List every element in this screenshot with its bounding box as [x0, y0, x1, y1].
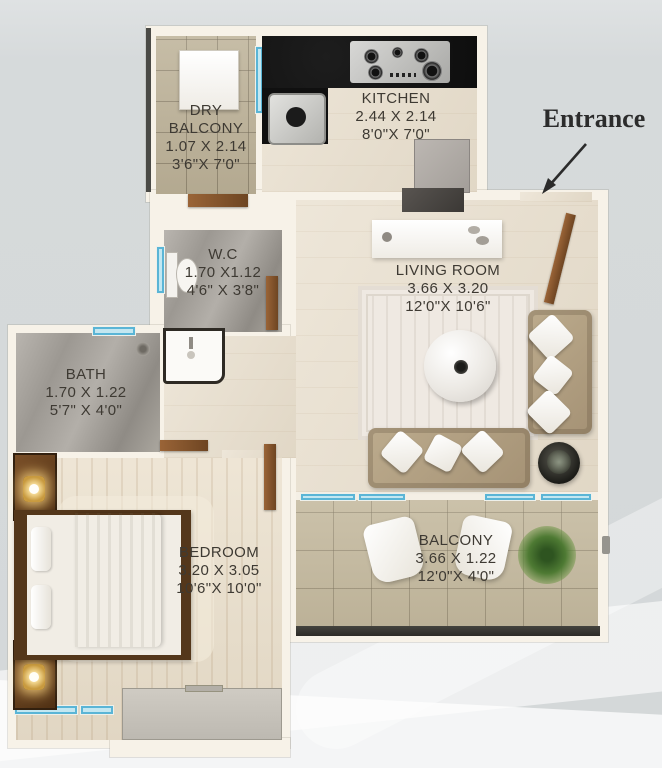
bath-window [92, 326, 136, 336]
room-name: KITCHEN [362, 90, 431, 108]
refrigerator [414, 139, 470, 193]
wall-bottom-step [110, 738, 290, 757]
room-name: DRY [190, 102, 223, 120]
balcony-door-handle [602, 536, 610, 554]
room-label-bedroom: BEDROOM 3.20 X 3.05 10'6"X 10'0" [140, 544, 298, 598]
stove-icon [350, 41, 450, 83]
room-dimensions-ft: 12'0"X 4'0" [418, 568, 495, 586]
room-name: BALCONY [169, 120, 244, 138]
room-label-kitchen: KITCHEN 2.44 X 2.14 8'0"X 7'0" [318, 90, 474, 144]
room-dimensions-m: 1.70 X 1.22 [45, 384, 126, 402]
sliding-door-glass [484, 493, 536, 501]
room-dimensions-ft: 4'6" X 3'8" [187, 282, 260, 300]
room-name: LIVING ROOM [396, 262, 500, 280]
lamp-icon [23, 476, 45, 502]
room-label-wc: W.C 1.70 X1.12 4'6" X 3'8" [164, 246, 282, 300]
coffee-table [424, 330, 496, 402]
sliding-door-glass [358, 493, 406, 501]
room-name: BATH [66, 366, 107, 384]
room-dimensions-m: 1.07 X 2.14 [165, 138, 246, 156]
room-label-dry-balcony: DRY BALCONY 1.07 X 2.14 3'6"X 7'0" [150, 102, 262, 174]
room-label-bath: BATH 1.70 X 1.22 5'7" X 4'0" [16, 366, 156, 420]
room-dimensions-m: 2.44 X 2.14 [355, 108, 436, 126]
washbasin [163, 328, 225, 384]
room-dimensions-m: 3.66 X 3.20 [407, 280, 488, 298]
pillow [31, 527, 51, 571]
room-dimensions-ft: 12'0"X 10'6" [405, 298, 490, 316]
room-name: BEDROOM [179, 544, 259, 562]
room-dimensions-ft: 5'7" X 4'0" [50, 402, 123, 420]
room-dimensions-ft: 8'0"X 7'0" [362, 126, 430, 144]
sliding-door-glass [540, 493, 592, 501]
sofa-right [528, 310, 592, 434]
bedroom-door [264, 444, 276, 510]
room-name: W.C [208, 246, 238, 264]
room-dimensions-m: 3.66 X 1.22 [415, 550, 496, 568]
entrance-label: Entrance [528, 104, 660, 134]
side-table-plant [538, 442, 580, 484]
sofa-bottom [368, 428, 530, 488]
washing-machine [179, 50, 239, 110]
entrance-arrow-icon [532, 138, 602, 202]
dry-balcony-door [188, 194, 248, 207]
wardrobe [122, 688, 282, 740]
room-dimensions-ft: 10'6"X 10'0" [176, 580, 261, 598]
bedroom-window [80, 705, 114, 715]
tv-console [372, 220, 502, 258]
shower-icon [136, 342, 150, 356]
bath-door [160, 440, 208, 451]
room-label-balcony: BALCONY 3.66 X 1.22 12'0"X 4'0" [372, 532, 540, 586]
sliding-door-glass [300, 493, 356, 501]
lamp-icon [23, 664, 45, 690]
room-dimensions-m: 3.20 X 3.05 [178, 562, 259, 580]
room-label-living-room: LIVING ROOM 3.66 X 3.20 12'0"X 10'6" [356, 262, 540, 316]
balcony-railing [296, 626, 600, 636]
room-name: BALCONY [419, 532, 494, 550]
room-dimensions-ft: 3'6"X 7'0" [172, 156, 240, 174]
pillow [31, 585, 51, 629]
tv-icon [402, 188, 464, 212]
floor-plan-canvas: DRY BALCONY 1.07 X 2.14 3'6"X 7'0" KITCH… [0, 0, 662, 768]
room-dimensions-m: 1.70 X1.12 [185, 264, 262, 282]
